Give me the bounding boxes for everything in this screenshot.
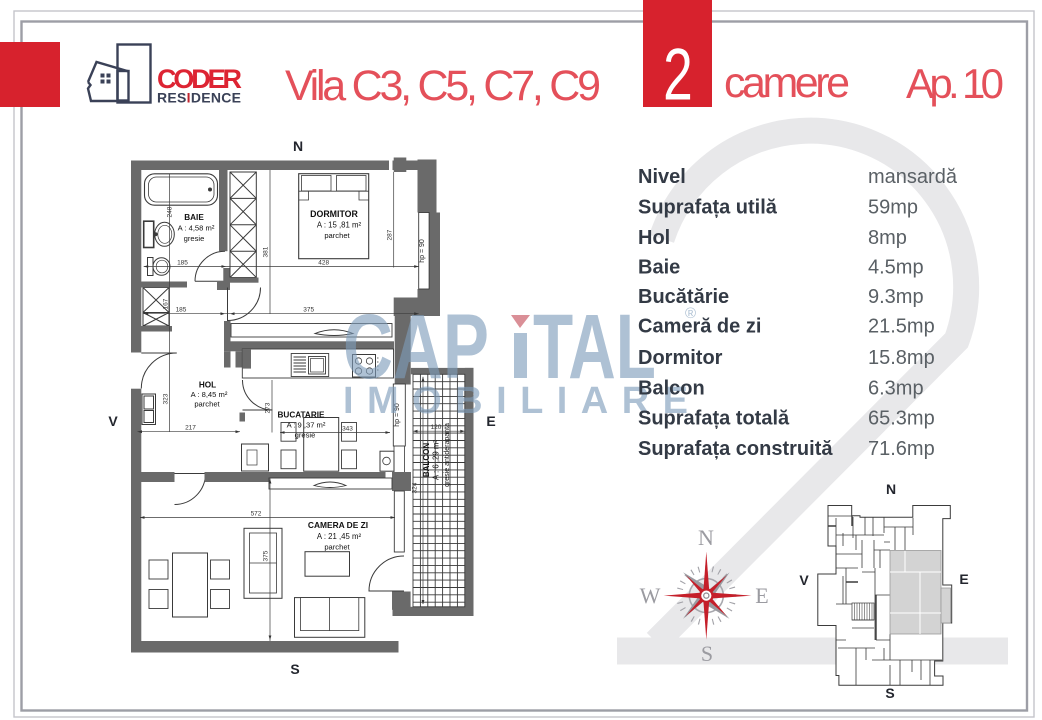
svg-text:21.5mp: 21.5mp <box>868 316 935 338</box>
svg-text:V: V <box>108 413 118 429</box>
svg-text:Nivel: Nivel <box>638 166 686 188</box>
svg-text:A : 6 ,29 m²: A : 6 ,29 m² <box>432 440 441 480</box>
svg-text:hp = 90: hp = 90 <box>419 239 426 263</box>
svg-text:E: E <box>755 583 768 608</box>
svg-text:248: 248 <box>167 206 174 217</box>
svg-text:Hol: Hol <box>638 227 670 249</box>
svg-text:323: 323 <box>163 393 170 404</box>
svg-text:Baie: Baie <box>638 257 680 279</box>
svg-text:S: S <box>290 661 299 677</box>
svg-text:Suprafața utilă: Suprafața utilă <box>638 197 778 219</box>
svg-text:BAIE: BAIE <box>184 213 204 222</box>
svg-text:343: 343 <box>342 426 353 433</box>
svg-text:6.3mp: 6.3mp <box>868 378 924 400</box>
svg-text:185: 185 <box>176 307 187 314</box>
svg-text:Bucătărie: Bucătărie <box>638 286 729 308</box>
svg-text:185: 185 <box>177 260 188 267</box>
svg-text:Suprafața totală: Suprafața totală <box>638 408 790 430</box>
svg-text:N: N <box>293 138 303 154</box>
svg-text:A : 15 ,81 m²: A : 15 ,81 m² <box>317 221 362 230</box>
svg-text:parchet: parchet <box>324 543 350 552</box>
svg-text:gresie: gresie <box>295 431 316 440</box>
svg-text:8mp: 8mp <box>868 227 907 249</box>
svg-text:572: 572 <box>251 511 262 518</box>
svg-text:parchet: parchet <box>324 231 350 240</box>
svg-text:BUCATARIE: BUCATARIE <box>278 411 326 420</box>
svg-text:9.3mp: 9.3mp <box>868 286 924 308</box>
svg-text:Balcon: Balcon <box>638 378 705 400</box>
svg-text:camere: camere <box>724 59 850 107</box>
svg-text:V: V <box>799 572 809 588</box>
svg-text:273: 273 <box>265 402 272 413</box>
svg-text:RESIDENCE: RESIDENCE <box>157 90 241 106</box>
svg-text:59mp: 59mp <box>868 197 918 219</box>
svg-text:Suprafața construită: Suprafața construită <box>638 438 833 460</box>
svg-text:324: 324 <box>412 482 419 493</box>
svg-text:287: 287 <box>387 229 394 240</box>
svg-text:gresie antiderapanta: gresie antiderapanta <box>444 423 451 487</box>
svg-text:S: S <box>885 685 894 701</box>
svg-text:mansardă: mansardă <box>868 166 958 188</box>
svg-text:71.6mp: 71.6mp <box>868 438 935 460</box>
svg-text:HOL: HOL <box>199 381 216 390</box>
svg-text:375: 375 <box>303 307 314 314</box>
svg-text:N: N <box>886 481 896 497</box>
svg-text:CAMERA DE ZI: CAMERA DE ZI <box>308 520 368 530</box>
svg-text:167: 167 <box>163 298 170 309</box>
svg-text:2: 2 <box>663 33 693 115</box>
svg-text:A : 8,45 m²: A : 8,45 m² <box>191 390 228 399</box>
svg-text:375: 375 <box>263 550 270 561</box>
svg-text:217: 217 <box>185 425 196 432</box>
svg-text:Dormitor: Dormitor <box>638 347 723 369</box>
svg-text:4.5mp: 4.5mp <box>868 257 924 279</box>
svg-text:120: 120 <box>431 424 442 431</box>
svg-text:Vila C3, C5, C7, C9: Vila C3, C5, C7, C9 <box>285 62 601 110</box>
svg-text:E: E <box>486 413 495 429</box>
svg-text:E: E <box>959 571 968 587</box>
svg-text:65.3mp: 65.3mp <box>868 408 935 430</box>
svg-text:W: W <box>640 583 661 608</box>
svg-text:gresie: gresie <box>184 234 205 243</box>
svg-text:A : 21 ,45 m²: A : 21 ,45 m² <box>317 532 362 541</box>
svg-text:428: 428 <box>318 260 329 267</box>
svg-text:DORMITOR: DORMITOR <box>310 209 358 219</box>
svg-text:A : 9 ,37 m²: A : 9 ,37 m² <box>287 421 326 430</box>
svg-text:Cameră de zi: Cameră de zi <box>638 316 761 338</box>
svg-text:parchet: parchet <box>194 400 220 409</box>
svg-text:381: 381 <box>263 246 270 257</box>
svg-text:N: N <box>698 525 714 550</box>
svg-text:S: S <box>701 641 713 666</box>
svg-text:Ap. 10: Ap. 10 <box>906 60 1004 107</box>
svg-text:A : 4,58 m²: A : 4,58 m² <box>178 224 215 233</box>
svg-text:15.8mp: 15.8mp <box>868 347 935 369</box>
